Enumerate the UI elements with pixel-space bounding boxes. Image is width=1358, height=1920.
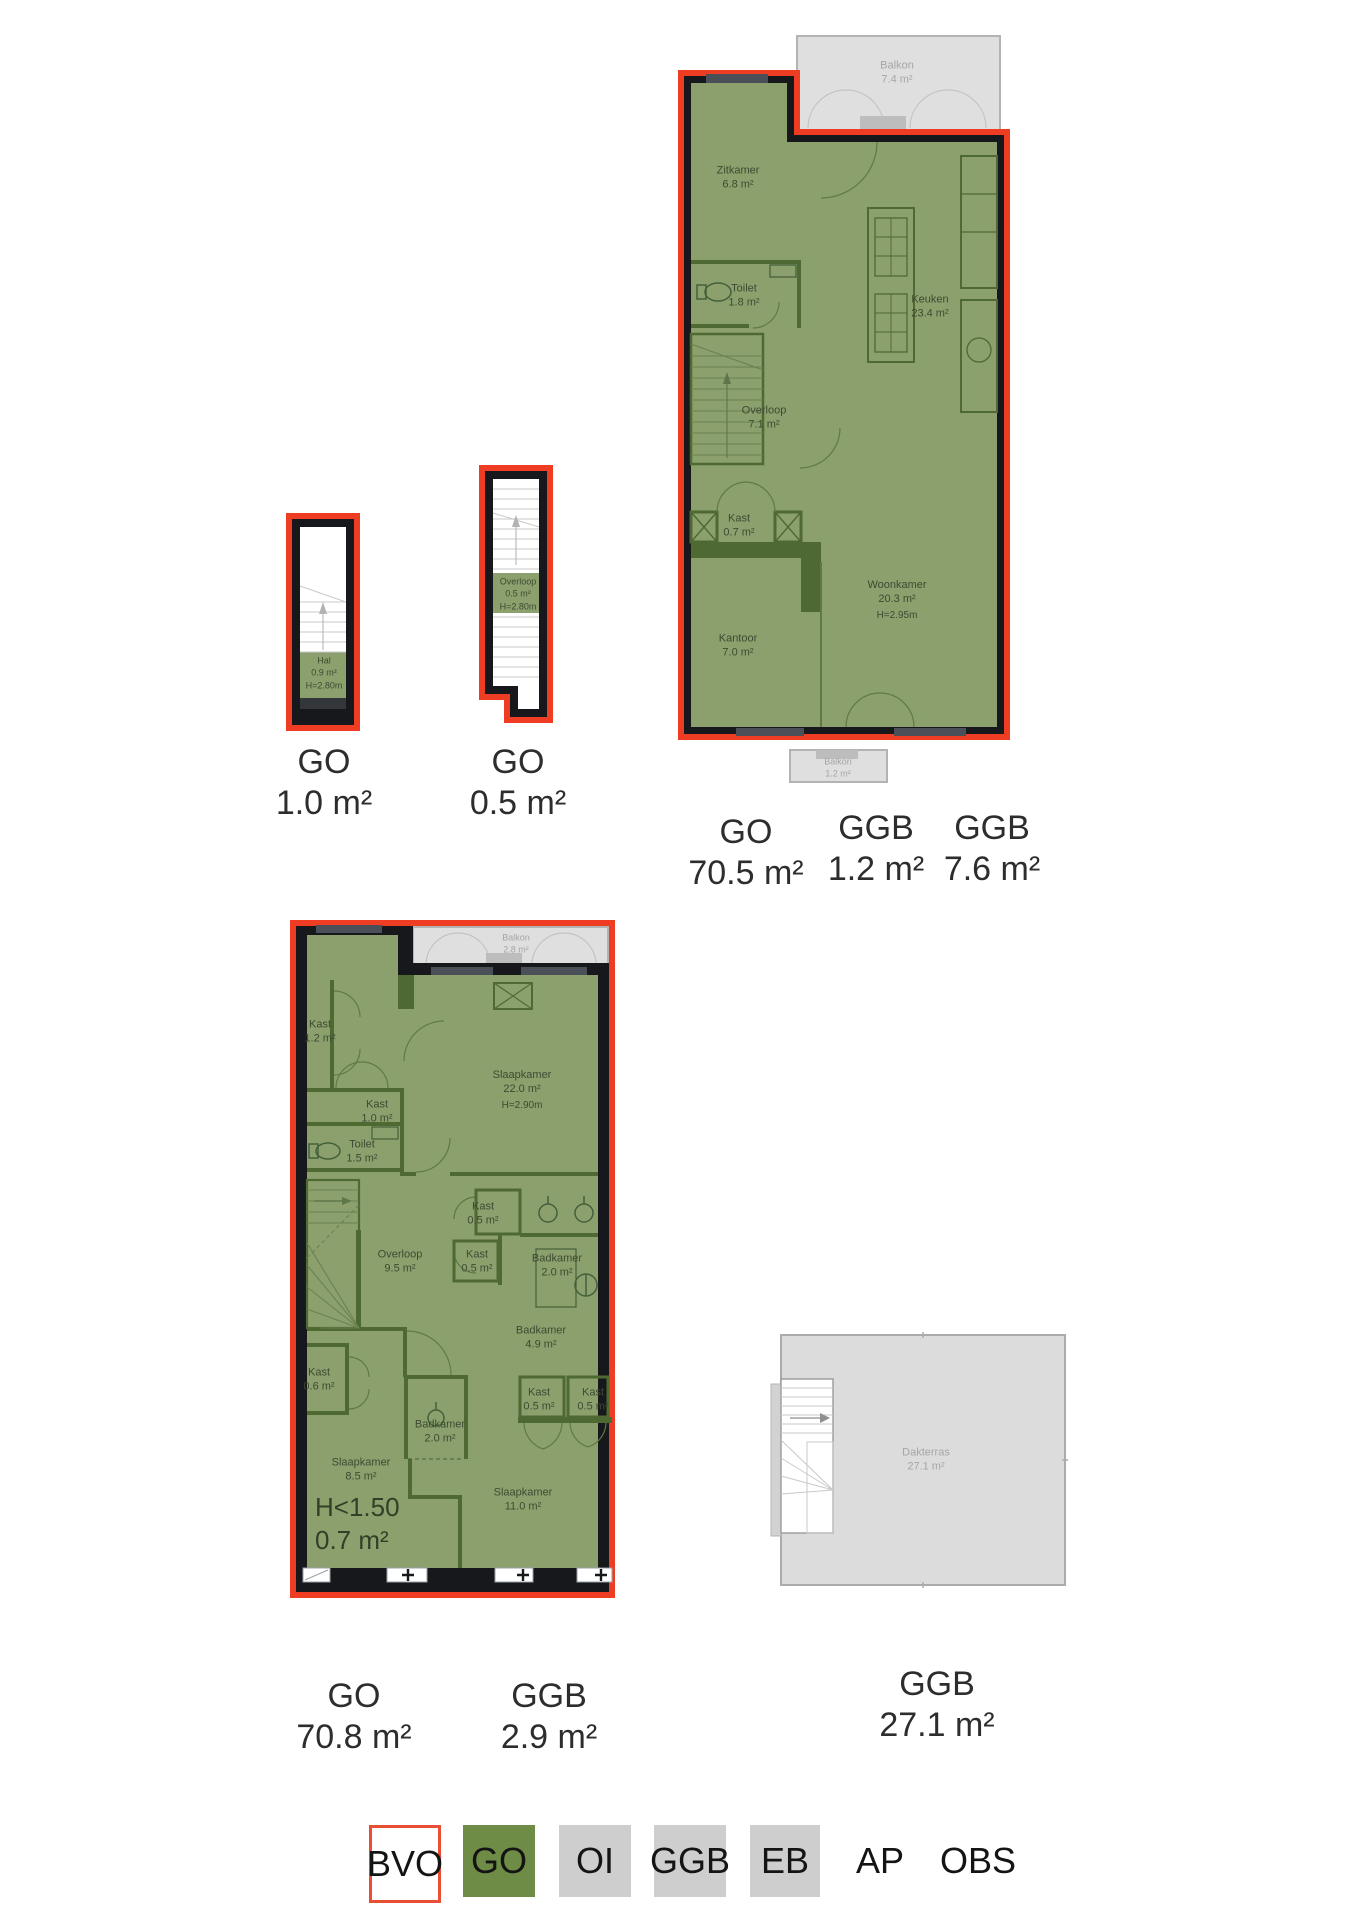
room-label-hal: Hal 0.9 m² H=2.80m [306, 655, 343, 692]
window [316, 925, 382, 933]
area-label-ggb-1_2: GGB 1.2 m² [828, 808, 924, 891]
window [706, 74, 768, 83]
room-label-kantoor: Kantoor 7.0 m² [719, 632, 758, 661]
room-label-slaapkamer22: Slaapkamer 22.0 m² H=2.90m [493, 1068, 552, 1112]
room-label-balkon-f2: Balkon 2.8 m² [502, 932, 530, 955]
threshold [300, 698, 346, 709]
room-label-slaapkamer85: Slaapkamer 8.5 m² [332, 1456, 391, 1485]
area-label-ggb-7_6: GGB 7.6 m² [944, 808, 1040, 891]
room-label-kast-f1: Kast 0.7 m² [723, 512, 754, 541]
floorplan-hal [286, 510, 364, 737]
legend-item-ggb: GGB [654, 1825, 726, 1897]
room-label-slaapkamer11: Slaapkamer 11.0 m² [494, 1486, 553, 1515]
room-label-badkamer20b: Badkamer 2.0 m² [415, 1418, 465, 1447]
floorplan-sheet: Balkon 7.4 m² Zitkamer 6.8 m² Toilet 1.8… [0, 0, 1358, 1920]
room-label-kast10: Kast 1.0 m² [361, 1098, 392, 1127]
room-label-zitkamer: Zitkamer 6.8 m² [717, 164, 760, 193]
room-label-badkamer49: Badkamer 4.9 m² [516, 1324, 566, 1353]
legend-item-go: GO [463, 1825, 535, 1897]
room-label-keuken: Keuken 23.4 m² [911, 293, 948, 322]
window [736, 728, 804, 736]
room-label-balkon-top: Balkon 7.4 m² [880, 59, 914, 88]
room-label-kast06: Kast 0.6 m² [303, 1366, 334, 1395]
room-label-lowheight: H<1.50 0.7 m² [315, 1493, 400, 1558]
legend-item-oi: OI [559, 1825, 631, 1897]
legend-item-bvo: BVO [369, 1825, 441, 1903]
room-label-badkamer20a: Badkamer 2.0 m² [532, 1252, 582, 1281]
room-label-kast05a: Kast 0.5 m² [467, 1200, 498, 1229]
window [521, 967, 587, 975]
legend-item-eb: EB [750, 1825, 820, 1897]
room-label-overloop95: Overloop 9.5 m² [378, 1248, 423, 1277]
stair-strip [771, 1384, 781, 1536]
room-label-kast05d: Kast 0.5 m² [577, 1386, 608, 1415]
window [894, 728, 966, 736]
floorplan-floor1 [678, 28, 1010, 783]
legend-item-obs: OBS [938, 1825, 1018, 1897]
window [431, 967, 493, 975]
wall-pillar [398, 975, 414, 1009]
room-label-overloop-small: Overloop 0.5 m² H=2.80m [500, 576, 537, 613]
room-label-overloop-f1: Overloop 7.1 m² [742, 404, 787, 433]
area-label-go-70_8: GO 70.8 m² [296, 1676, 411, 1759]
area-label-go-70_5: GO 70.5 m² [688, 812, 803, 895]
room-label-balkon-bottom: Balkon 1.2 m² [824, 756, 852, 779]
room-label-dakterras: Dakterras 27.1 m² [902, 1446, 950, 1475]
room-label-kast05b: Kast 0.5 m² [461, 1248, 492, 1277]
area-label-ggb-27_1: GGB 27.1 m² [879, 1664, 994, 1747]
legend-item-ap: AP [850, 1825, 910, 1897]
area-label-go-0_5: GO 0.5 m² [470, 742, 566, 825]
room-label-kast05c: Kast 0.5 m² [523, 1386, 554, 1415]
room-label-kast12: Kast 1.2 m² [304, 1018, 335, 1047]
room-label-toilet: Toilet 1.8 m² [728, 282, 759, 311]
room-label-woonkamer: Woonkamer 20.3 m² H=2.95m [867, 578, 926, 622]
area-label-ggb-2_9: GGB 2.9 m² [501, 1676, 597, 1759]
area-label-go-1_0: GO 1.0 m² [276, 742, 372, 825]
room-label-toilet15: Toilet 1.5 m² [346, 1138, 377, 1167]
interior-floor [307, 935, 398, 980]
